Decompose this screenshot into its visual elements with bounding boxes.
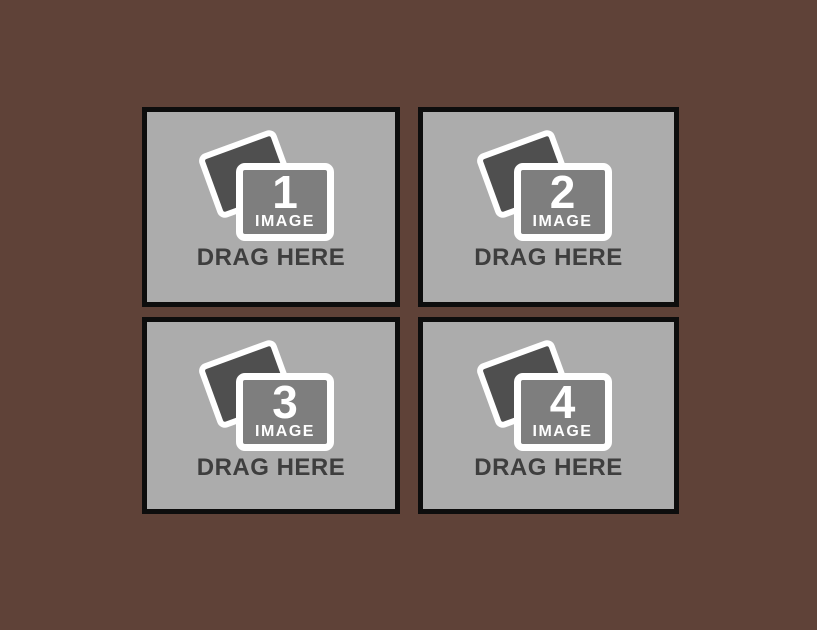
dropzone-2[interactable]: 2 IMAGE DRAG HERE [418, 107, 679, 307]
drag-here-label: DRAG HERE [197, 245, 346, 271]
dropzone-3[interactable]: 3 IMAGE DRAG HERE [142, 317, 400, 514]
photo-stack-icon: 2 IMAGE [474, 125, 624, 243]
photo-number: 2 [550, 174, 576, 212]
image-label: IMAGE [533, 214, 593, 230]
front-photo-icon: 2 IMAGE [514, 163, 612, 241]
dropzone-4[interactable]: 4 IMAGE DRAG HERE [418, 317, 679, 514]
photo-stack-icon: 1 IMAGE [196, 125, 346, 243]
drag-here-label: DRAG HERE [474, 245, 623, 271]
image-label: IMAGE [533, 424, 593, 440]
front-photo-icon: 1 IMAGE [236, 163, 334, 241]
photo-stack-icon: 4 IMAGE [474, 335, 624, 453]
photo-number: 4 [550, 384, 576, 422]
drag-here-label: DRAG HERE [474, 455, 623, 481]
image-label: IMAGE [255, 214, 315, 230]
photo-number: 3 [272, 384, 298, 422]
image-label: IMAGE [255, 424, 315, 440]
front-photo-icon: 3 IMAGE [236, 373, 334, 451]
photo-number: 1 [272, 174, 298, 212]
dropzone-1[interactable]: 1 IMAGE DRAG HERE [142, 107, 400, 307]
front-photo-icon: 4 IMAGE [514, 373, 612, 451]
photo-stack-icon: 3 IMAGE [196, 335, 346, 453]
drag-here-label: DRAG HERE [197, 455, 346, 481]
